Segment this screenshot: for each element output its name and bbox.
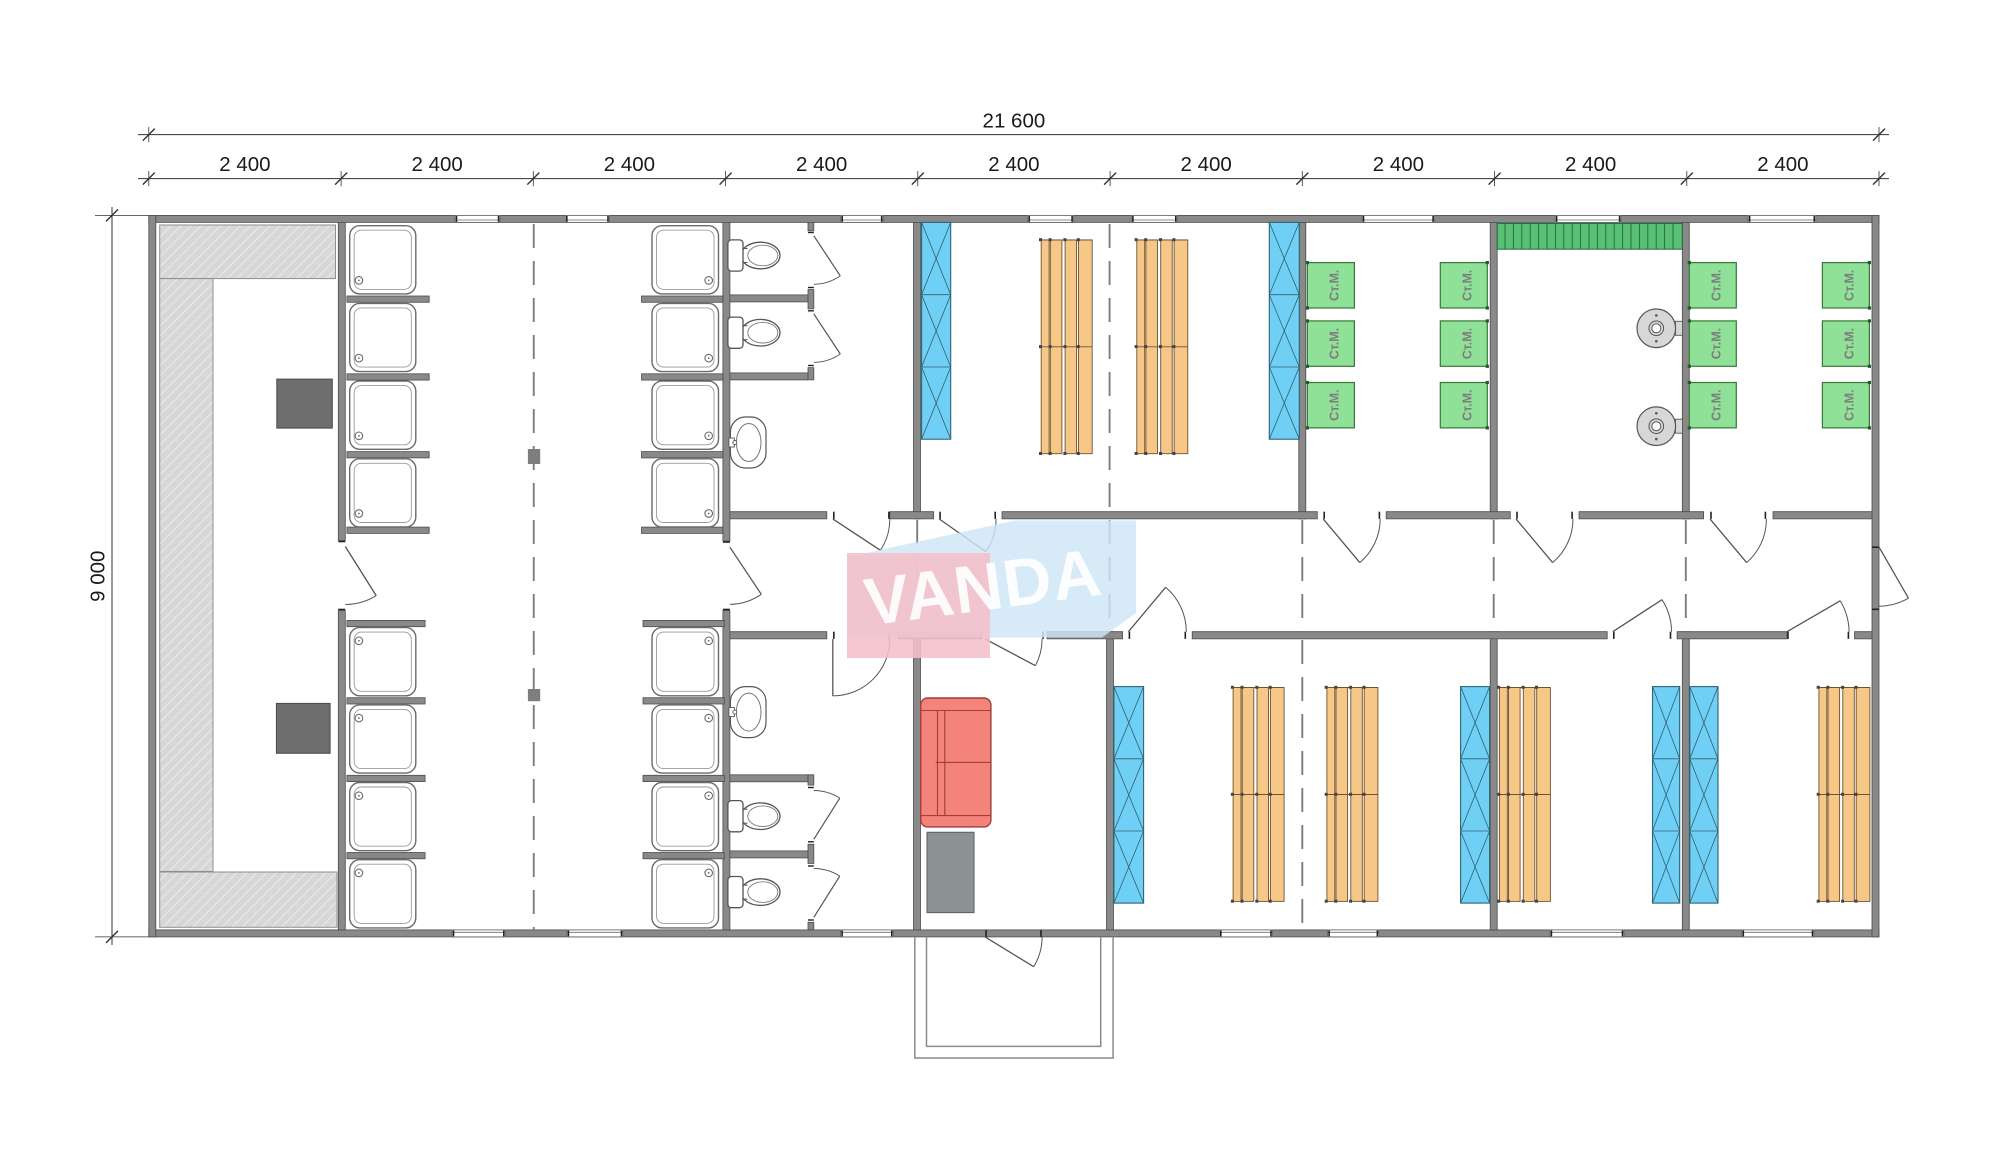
svg-text:2 400: 2 400 xyxy=(1373,153,1424,176)
svg-text:Ст.М.: Ст.М. xyxy=(1842,328,1856,359)
svg-text:Ст.М.: Ст.М. xyxy=(1327,270,1341,301)
svg-text:Ст.М.: Ст.М. xyxy=(1460,389,1474,420)
svg-text:Ст.М.: Ст.М. xyxy=(1460,270,1474,301)
svg-text:2 400: 2 400 xyxy=(604,153,655,176)
svg-text:2 400: 2 400 xyxy=(796,153,847,176)
svg-text:2 400: 2 400 xyxy=(412,153,463,176)
svg-text:Ст.М.: Ст.М. xyxy=(1460,328,1474,359)
svg-text:2 400: 2 400 xyxy=(1181,153,1232,176)
svg-text:Ст.М.: Ст.М. xyxy=(1327,328,1341,359)
svg-text:2 400: 2 400 xyxy=(1565,153,1616,176)
svg-text:2 400: 2 400 xyxy=(219,153,270,176)
svg-text:Ст.М.: Ст.М. xyxy=(1709,270,1723,301)
svg-text:Ст.М.: Ст.М. xyxy=(1709,328,1723,359)
svg-text:21 600: 21 600 xyxy=(983,110,1046,133)
svg-text:Ст.М.: Ст.М. xyxy=(1327,389,1341,420)
svg-text:9 000: 9 000 xyxy=(87,551,110,602)
svg-text:Ст.М.: Ст.М. xyxy=(1709,389,1723,420)
svg-text:Ст.М.: Ст.М. xyxy=(1842,270,1856,301)
svg-text:2 400: 2 400 xyxy=(1757,153,1808,176)
svg-text:Ст.М.: Ст.М. xyxy=(1842,389,1856,420)
svg-text:2 400: 2 400 xyxy=(988,153,1039,176)
